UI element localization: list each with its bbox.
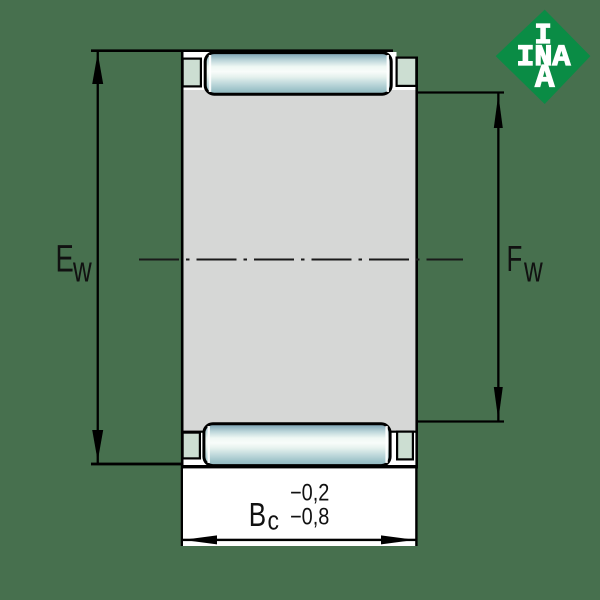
svg-text:c: c [268, 506, 279, 536]
svg-text:w: w [72, 249, 92, 289]
svg-text:F: F [507, 239, 523, 279]
svg-text:A: A [535, 59, 555, 96]
svg-text:E: E [56, 238, 74, 280]
svg-text:−0,8: −0,8 [290, 503, 329, 530]
svg-text:w: w [523, 249, 543, 289]
svg-text:B: B [249, 497, 266, 534]
